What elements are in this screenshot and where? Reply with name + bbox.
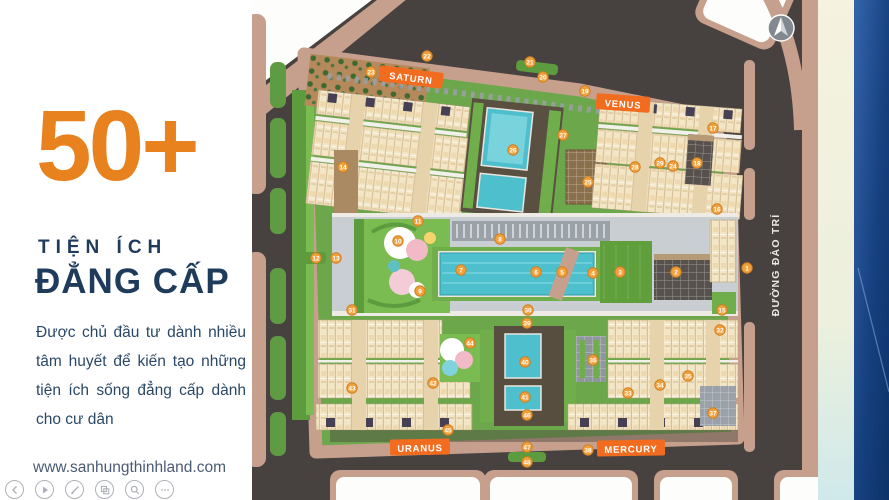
- svg-text:17: 17: [709, 125, 717, 132]
- amenity-marker-28: 28: [630, 162, 640, 172]
- zone-label-uranus: URANUS: [390, 438, 450, 455]
- amenity-marker-10: 10: [393, 236, 403, 246]
- amenity-marker-5: 5: [557, 267, 567, 277]
- saturn-wing: [306, 90, 474, 221]
- site-layer: [292, 54, 748, 462]
- amenity-marker-16: 16: [712, 204, 722, 214]
- panel-title-line1: TIỆN ÍCH: [38, 237, 167, 259]
- amenity-marker-3: 3: [615, 267, 625, 277]
- amenity-marker-34: 34: [655, 380, 665, 390]
- svg-text:23: 23: [367, 69, 375, 76]
- amenity-marker-8: 8: [495, 234, 505, 244]
- svg-text:14: 14: [339, 164, 347, 171]
- svg-text:3: 3: [618, 269, 622, 276]
- previous-button[interactable]: [5, 480, 24, 499]
- amenity-marker-19: 19: [580, 86, 590, 96]
- svg-text:33: 33: [624, 390, 632, 397]
- svg-text:8: 8: [498, 236, 502, 243]
- svg-text:24: 24: [669, 163, 677, 170]
- svg-text:30: 30: [524, 307, 532, 314]
- more-icon[interactable]: [155, 480, 174, 499]
- amenity-marker-30: 30: [523, 305, 533, 315]
- play-button[interactable]: [35, 480, 54, 499]
- amenity-marker-6: 6: [531, 267, 541, 277]
- amenity-marker-37: 37: [708, 408, 718, 418]
- amenity-marker-26: 26: [508, 145, 518, 155]
- svg-text:46: 46: [523, 412, 531, 419]
- venus-wing: [592, 98, 748, 219]
- edit-icon[interactable]: [65, 480, 84, 499]
- amenity-marker-21: 21: [525, 57, 535, 67]
- amenity-marker-13: 13: [331, 253, 341, 263]
- svg-text:45: 45: [444, 427, 452, 434]
- amenity-count: 50+: [36, 96, 197, 196]
- amenity-marker-20: 20: [538, 72, 548, 82]
- svg-text:19: 19: [581, 88, 589, 95]
- amenity-marker-46: 46: [522, 410, 532, 420]
- svg-text:20: 20: [539, 74, 547, 81]
- amenity-marker-1: 1: [742, 263, 752, 273]
- svg-text:36: 36: [589, 357, 597, 364]
- amenity-marker-41: 41: [520, 392, 530, 402]
- zone-label-mercury: MERCURY: [597, 439, 665, 456]
- amenity-marker-36: 36: [588, 355, 598, 365]
- marketing-panel: 50+ TIỆN ÍCH ĐẲNG CẤP Được chủ đầu tư dà…: [0, 0, 252, 500]
- amenity-marker-43: 43: [347, 383, 357, 393]
- panel-title-line2: ĐẲNG CẤP: [35, 262, 230, 302]
- amenity-marker-40: 40: [520, 357, 530, 367]
- amenity-marker-42: 42: [428, 378, 438, 388]
- svg-text:URANUS: URANUS: [397, 443, 443, 455]
- svg-text:16: 16: [713, 206, 721, 213]
- amenity-marker-25: 25: [583, 177, 593, 187]
- amenity-marker-4: 4: [588, 268, 598, 278]
- amenity-marker-23: 23: [366, 67, 376, 77]
- website-url: www.sanhungthinhland.com: [33, 459, 226, 477]
- svg-text:5: 5: [560, 269, 564, 276]
- road-name-label: ĐƯỜNG ĐÀO TRÍ: [769, 214, 782, 317]
- svg-text:31: 31: [348, 307, 356, 314]
- svg-text:29: 29: [656, 160, 664, 167]
- svg-text:38: 38: [584, 447, 592, 454]
- svg-text:18: 18: [693, 160, 701, 167]
- svg-text:44: 44: [466, 340, 474, 347]
- amenity-marker-39: 39: [522, 318, 532, 328]
- north-plaza: [460, 98, 563, 221]
- svg-text:22: 22: [423, 53, 431, 60]
- svg-text:25: 25: [584, 179, 592, 186]
- amenity-marker-44: 44: [465, 338, 475, 348]
- svg-text:28: 28: [631, 164, 639, 171]
- amenity-marker-2: 2: [671, 267, 681, 277]
- copy-icon[interactable]: [95, 480, 114, 499]
- svg-text:1: 1: [745, 265, 749, 272]
- svg-text:2: 2: [674, 269, 678, 276]
- svg-text:9: 9: [418, 288, 422, 295]
- amenity-marker-24: 24: [668, 161, 678, 171]
- svg-text:6: 6: [534, 269, 538, 276]
- svg-text:34: 34: [656, 382, 664, 389]
- svg-text:42: 42: [429, 380, 437, 387]
- amenity-marker-11: 11: [413, 216, 423, 226]
- amenity-marker-17: 17: [708, 123, 718, 133]
- amenity-marker-27: 27: [558, 130, 568, 140]
- amenity-marker-15: 15: [717, 305, 727, 315]
- amenity-marker-33: 33: [623, 388, 633, 398]
- zoom-icon[interactable]: [125, 480, 144, 499]
- svg-text:35: 35: [684, 373, 692, 380]
- amenity-marker-22: 22: [422, 51, 432, 61]
- svg-text:47: 47: [523, 444, 531, 451]
- amenity-marker-9: 9: [415, 286, 425, 296]
- compass-icon: [768, 15, 794, 41]
- svg-text:41: 41: [521, 394, 529, 401]
- svg-text:39: 39: [523, 320, 531, 327]
- amenity-marker-48: 48: [522, 457, 532, 467]
- amenity-marker-35: 35: [683, 371, 693, 381]
- masterplan-slide: SATURN VENUS URANUS MERCURY ĐƯỜNG ĐÀO TR…: [0, 0, 889, 500]
- svg-text:32: 32: [716, 327, 724, 334]
- svg-text:43: 43: [348, 385, 356, 392]
- svg-text:37: 37: [709, 410, 717, 417]
- panel-description: Được chủ đầu tư dành nhiều tâm huyết để …: [36, 318, 246, 434]
- svg-text:10: 10: [394, 238, 402, 245]
- amenity-marker-14: 14: [338, 162, 348, 172]
- amenity-marker-32: 32: [715, 325, 725, 335]
- central-amenities: [332, 213, 738, 316]
- svg-text:ĐƯỜNG ĐÀO TRÍ: ĐƯỜNG ĐÀO TRÍ: [769, 214, 782, 317]
- amenity-marker-18: 18: [692, 158, 702, 168]
- amenity-marker-31: 31: [347, 305, 357, 315]
- svg-text:MERCURY: MERCURY: [604, 444, 657, 456]
- amenity-marker-29: 29: [655, 158, 665, 168]
- amenity-marker-38: 38: [583, 445, 593, 455]
- amenity-marker-45: 45: [443, 425, 453, 435]
- svg-text:13: 13: [332, 255, 340, 262]
- amenity-marker-12: 12: [311, 253, 321, 263]
- blue-band: [854, 0, 889, 500]
- viewer-controls: [5, 480, 174, 499]
- svg-text:21: 21: [526, 59, 534, 66]
- svg-text:7: 7: [459, 267, 463, 274]
- svg-text:26: 26: [509, 147, 517, 154]
- shore-strip: [818, 0, 855, 500]
- amenity-marker-7: 7: [456, 265, 466, 275]
- svg-text:27: 27: [559, 132, 567, 139]
- svg-text:40: 40: [521, 359, 529, 366]
- svg-text:11: 11: [415, 218, 422, 225]
- svg-text:48: 48: [523, 459, 531, 466]
- svg-text:12: 12: [312, 255, 320, 262]
- svg-text:4: 4: [591, 270, 595, 277]
- amenity-marker-47: 47: [522, 442, 532, 452]
- svg-text:15: 15: [718, 307, 726, 314]
